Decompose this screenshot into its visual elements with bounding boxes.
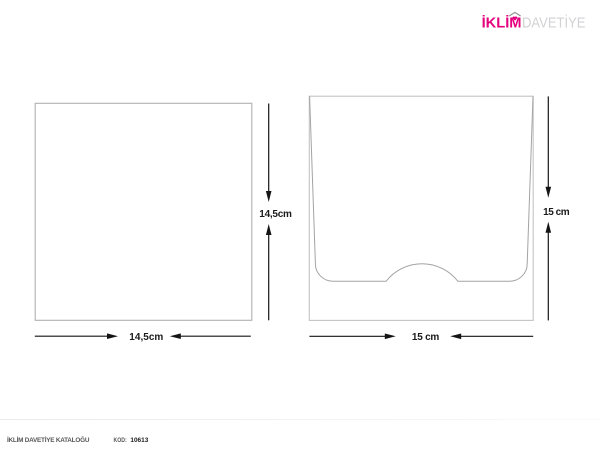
svg-text:15 cm: 15 cm — [412, 332, 439, 343]
svg-text:KOD:: KOD: — [114, 437, 127, 444]
svg-text:İKLİM DAVETİYE KATALOĞU: İKLİM DAVETİYE KATALOĞU — [7, 435, 90, 444]
svg-text:DAVETİYE: DAVETİYE — [522, 14, 586, 32]
svg-text:14,5cm: 14,5cm — [259, 209, 292, 220]
svg-text:10613: 10613 — [130, 437, 148, 444]
svg-text:14,5cm: 14,5cm — [129, 332, 163, 343]
svg-text:15 cm: 15 cm — [543, 207, 570, 218]
